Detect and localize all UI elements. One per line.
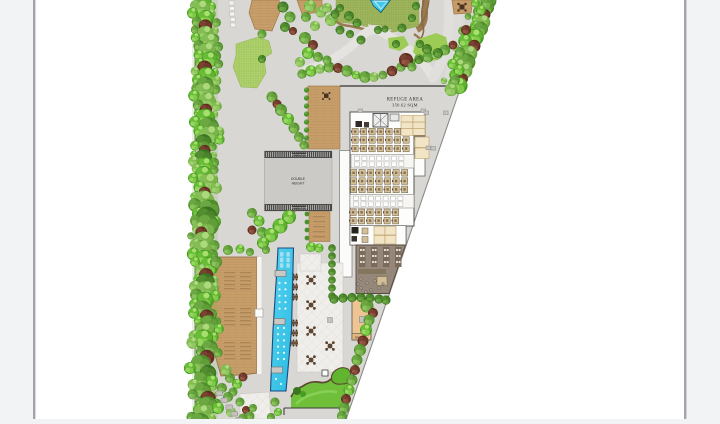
- svg-text:DOUBLE: DOUBLE: [291, 177, 306, 181]
- svg-text:AMPHITHEATRE: AMPHITHEATRE: [291, 206, 308, 209]
- svg-text:AMPHITHEATRE: AMPHITHEATRE: [291, 153, 308, 156]
- svg-text:350.62 SQM: 350.62 SQM: [392, 102, 418, 107]
- svg-text:HEIGHT: HEIGHT: [292, 182, 305, 186]
